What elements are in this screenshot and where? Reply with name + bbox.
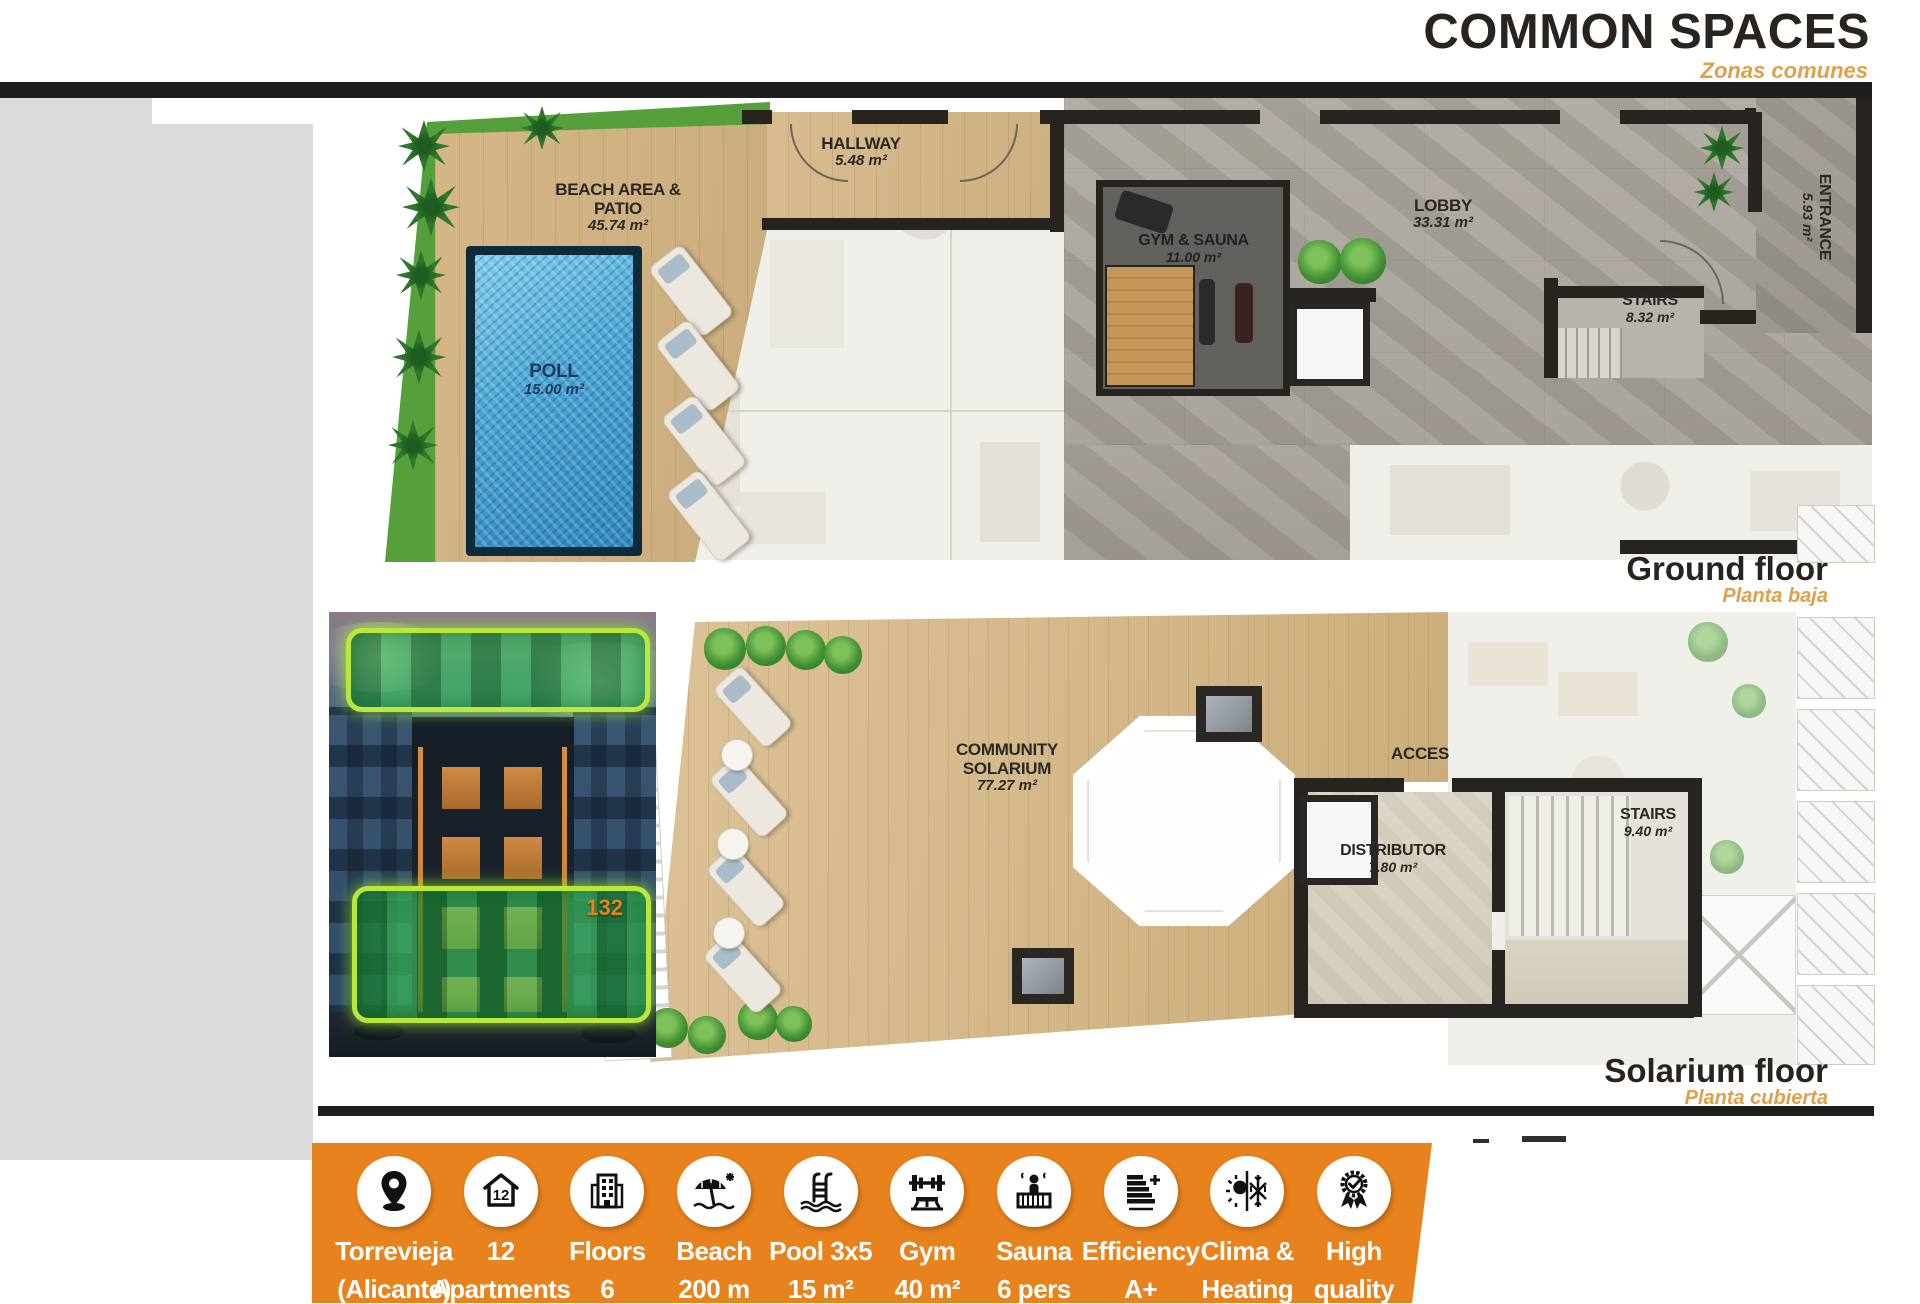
feature-line2: 200 m	[678, 1275, 749, 1303]
feature-circle	[1104, 1156, 1178, 1227]
room-label-gym: GYM & SAUNA 11.00 m²	[1106, 232, 1281, 266]
feature-efficiency: Efficiency A+	[1089, 1156, 1193, 1303]
plant-icon	[1298, 240, 1342, 284]
room-area: 8.32 m²	[1596, 310, 1704, 326]
wall-segment	[1544, 278, 1558, 378]
highlight-solarium-box	[346, 628, 650, 712]
solarium-landing-floor	[1505, 940, 1688, 1004]
feature-quality: High quality	[1302, 1156, 1406, 1303]
feature-beach: Beach 200 m	[662, 1156, 766, 1303]
skylight-glass	[1206, 696, 1252, 732]
wall-segment	[1452, 778, 1512, 792]
room-name: POLL	[466, 361, 642, 382]
room-area: 7.80 m²	[1318, 860, 1468, 876]
apartments-icon: 12	[477, 1167, 525, 1215]
wall-segment	[742, 110, 772, 124]
room-name: LOBBY	[1378, 196, 1508, 215]
unit-number-badge: 132	[586, 895, 623, 921]
room-label-pool: POLL 15.00 m²	[466, 361, 642, 399]
feature-line2: 15 m²	[788, 1275, 853, 1303]
plant-icon	[1340, 238, 1386, 284]
wall-segment	[1040, 110, 1260, 124]
left-gray-column	[0, 124, 313, 1160]
gym-equipment	[1114, 189, 1175, 234]
elevator	[1290, 302, 1370, 386]
caption-en: Solarium floor	[1604, 1054, 1828, 1087]
room-name: ENTRANCE	[1815, 122, 1833, 312]
clima-heating-icon	[1223, 1167, 1271, 1215]
feature-line1: Gym	[899, 1237, 955, 1265]
wall-segment	[1492, 950, 1505, 1010]
roof-panel	[1797, 709, 1875, 791]
wall-segment	[1620, 110, 1745, 124]
feature-line2: quality	[1314, 1275, 1394, 1303]
plant-icon	[1710, 840, 1744, 874]
feature-line1: Clima &	[1201, 1237, 1294, 1265]
feature-circle	[357, 1156, 431, 1227]
room-area: 11.00 m²	[1106, 250, 1281, 266]
feature-line1: Beach	[676, 1237, 752, 1265]
feature-circle	[1317, 1156, 1391, 1227]
wall-segment	[1320, 110, 1560, 124]
gym-equipment	[1235, 283, 1253, 343]
floors-icon	[583, 1167, 631, 1215]
plant-icon	[824, 636, 862, 674]
room-label-acces: ACCES	[1360, 744, 1480, 763]
feature-sauna: Sauna 6 pers	[982, 1156, 1086, 1303]
plant-icon	[1688, 622, 1728, 662]
room-name: COMMUNITY	[922, 740, 1092, 759]
wall-segment	[762, 218, 1064, 230]
room-name: GYM & SAUNA	[1106, 232, 1281, 250]
pool-water	[475, 255, 633, 547]
features-bar: Torrevieja (Alicante) 12 12 Apartments	[312, 1143, 1432, 1303]
quality-medal-icon	[1330, 1167, 1378, 1215]
feature-clima: Clima & Heating	[1195, 1156, 1299, 1303]
feature-line2: 6	[600, 1275, 614, 1303]
ground-gym-sauna-room	[1096, 180, 1290, 396]
wall-segment	[1856, 98, 1872, 333]
swimming-pool: POLL 15.00 m²	[466, 246, 642, 556]
header-divider-bar	[0, 82, 1872, 98]
room-area: 5.48 m²	[766, 153, 956, 170]
feature-line2: 40 m²	[895, 1275, 960, 1303]
feature-circle	[997, 1156, 1071, 1227]
wall-segment	[1294, 778, 1404, 792]
room-area: 9.40 m²	[1596, 824, 1700, 840]
wall-segment	[852, 110, 948, 124]
room-name: DISTRIBUTOR	[1318, 842, 1468, 860]
room-name: ACCES	[1360, 744, 1480, 763]
octagon-skylight	[1073, 716, 1295, 926]
plant-icon	[786, 630, 826, 670]
wall-segment	[1748, 112, 1762, 212]
wall-segment	[1492, 792, 1505, 912]
page-subtitle: Zonas comunes	[1701, 58, 1868, 84]
feature-line2: 6 pers	[997, 1275, 1071, 1303]
roof-panel	[1797, 801, 1875, 883]
feature-circle	[677, 1156, 751, 1227]
room-area: 5.93 m²	[1799, 122, 1815, 312]
feature-circle	[1210, 1156, 1284, 1227]
cropped-graphic-mark	[1522, 1136, 1566, 1142]
room-label-community-solarium: COMMUNITY SOLARIUM 77.27 m²	[922, 740, 1092, 795]
skylight-box	[1196, 686, 1262, 742]
room-area: 33.31 m²	[1378, 215, 1508, 232]
skylight-glass	[1022, 958, 1064, 994]
gym-equipment	[1199, 279, 1215, 345]
highlight-ground-box: 132	[352, 886, 651, 1023]
svg-text:12: 12	[492, 1187, 509, 1204]
feature-line1: 12	[487, 1237, 515, 1265]
wall-segment	[1512, 778, 1702, 792]
room-label-entrance: ENTRANCE 5.93 m²	[1789, 122, 1833, 312]
caption-es: Planta baja	[1626, 585, 1828, 607]
ground-lobby-floor-extension	[1064, 445, 1350, 560]
building-night-photo: 132	[329, 612, 656, 1057]
sauna-wood-floor	[1105, 265, 1195, 387]
feature-pool: Pool 3x5 15 m²	[769, 1156, 873, 1303]
side-table	[717, 828, 749, 860]
plant-icon	[688, 1016, 726, 1054]
feature-circle	[890, 1156, 964, 1227]
skylight-box	[1012, 948, 1074, 1004]
feature-line1: Efficiency	[1082, 1237, 1200, 1265]
feature-line1: High	[1326, 1237, 1382, 1265]
gym-icon	[903, 1167, 951, 1215]
location-pin-icon	[370, 1167, 418, 1215]
feature-line1: Pool 3x5	[769, 1237, 872, 1265]
room-label-stairs-solarium: STAIRS 9.40 m²	[1596, 806, 1700, 840]
feature-gym: Gym 40 m²	[875, 1156, 979, 1303]
plant-icon	[704, 628, 746, 670]
room-label-lobby: LOBBY 33.31 m²	[1378, 196, 1508, 232]
wall-segment	[1284, 288, 1376, 302]
stair-treads	[1556, 328, 1622, 378]
room-label-distributor: DISTRIBUTOR 7.80 m²	[1318, 842, 1468, 876]
feature-line1: Sauna	[996, 1237, 1072, 1265]
feature-line1: Floors	[569, 1237, 645, 1265]
room-label-beach: BEACH AREA & PATIO 45.74 m²	[538, 180, 698, 235]
room-area: 45.74 m²	[538, 218, 698, 235]
section-divider-line	[318, 1106, 1874, 1116]
room-area: 15.00 m²	[466, 382, 642, 399]
room-name: BEACH AREA & PATIO	[538, 180, 698, 218]
roof-panel	[1797, 893, 1875, 975]
feature-line2: Heating	[1201, 1275, 1293, 1303]
room-area: 77.27 m²	[922, 778, 1092, 795]
cropped-graphic-mark	[1473, 1139, 1489, 1143]
brochure-page: { "header": { "title": "COMMON SPACES", …	[0, 0, 1920, 1280]
feature-line1: Torrevieja	[335, 1237, 452, 1265]
octagon-skylight-inner	[1087, 730, 1281, 912]
beach-icon	[690, 1167, 738, 1215]
room-name: STAIRS	[1596, 806, 1700, 824]
sauna-icon	[1010, 1167, 1058, 1215]
roof-panel	[1797, 617, 1875, 699]
feature-apartments: 12 12 Apartments	[449, 1156, 553, 1303]
solarium-floor-caption: Solarium floor Planta cubierta	[1604, 1054, 1828, 1109]
feature-circle: 12	[464, 1156, 538, 1227]
feature-line2: Apartments	[431, 1275, 570, 1303]
room-name: SOLARIUM	[922, 759, 1092, 778]
feature-circle	[570, 1156, 644, 1227]
feature-line2: A+	[1124, 1275, 1157, 1303]
wall-segment	[1050, 112, 1064, 232]
efficiency-icon	[1117, 1167, 1165, 1215]
roof-panel	[1797, 505, 1875, 563]
plant-icon	[776, 1006, 812, 1042]
feature-floors: Floors 6	[555, 1156, 659, 1303]
side-table	[713, 917, 745, 949]
feature-circle	[784, 1156, 858, 1227]
left-gray-block-step	[0, 98, 152, 124]
pool-icon	[797, 1167, 845, 1215]
plant-icon	[746, 626, 786, 666]
side-table	[721, 739, 753, 771]
plant-icon	[1732, 684, 1766, 718]
page-title: COMMON SPACES	[1423, 4, 1870, 60]
